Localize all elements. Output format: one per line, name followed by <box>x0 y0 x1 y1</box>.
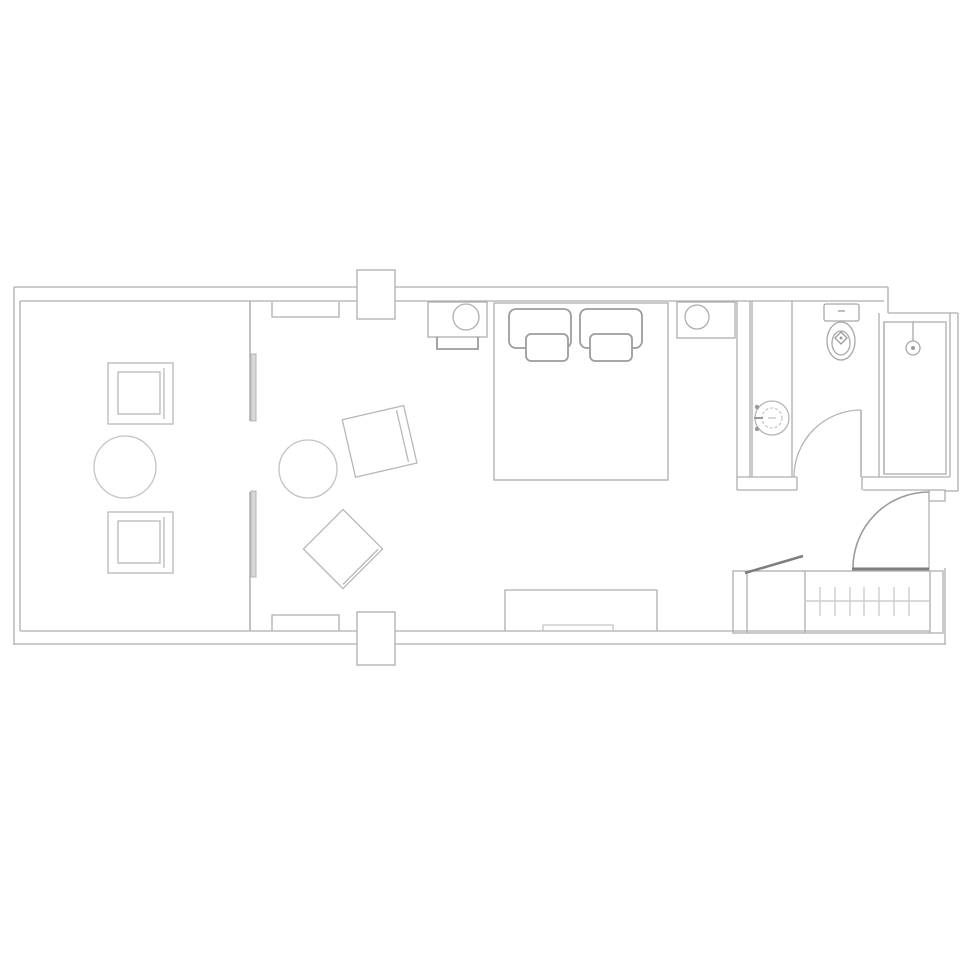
living-armchair <box>342 406 417 478</box>
wall-pier-top <box>357 270 395 319</box>
desk-stool <box>453 304 479 330</box>
bathroom-door <box>794 410 861 477</box>
shower-head <box>906 322 920 355</box>
wall-pier-bottom <box>357 612 395 665</box>
toilet <box>824 304 859 360</box>
curtain-box-bottom <box>272 615 339 631</box>
bathroom-lower-wall <box>737 477 950 490</box>
tv-console <box>505 590 657 631</box>
living-side-table <box>279 440 337 498</box>
entry-door <box>852 492 929 570</box>
table-lamp <box>685 305 709 329</box>
desk-chair <box>437 337 478 349</box>
living-ottoman <box>303 509 382 588</box>
bed-pillows <box>509 309 642 361</box>
sliding-door-panels <box>251 354 256 577</box>
balcony-armchair-bottom <box>108 512 173 573</box>
balcony-armchair-top <box>108 363 173 424</box>
balcony-table <box>94 436 156 498</box>
vanity-counter <box>752 301 792 477</box>
toilet-shower-wall <box>879 313 884 477</box>
bedroom-bathroom-wall <box>737 301 750 490</box>
floorplan-canvas <box>0 0 975 975</box>
shower-enclosure <box>884 313 950 477</box>
wardrobe <box>733 571 943 633</box>
curtain-box-top <box>272 302 339 317</box>
floorplan-svg <box>0 0 975 975</box>
